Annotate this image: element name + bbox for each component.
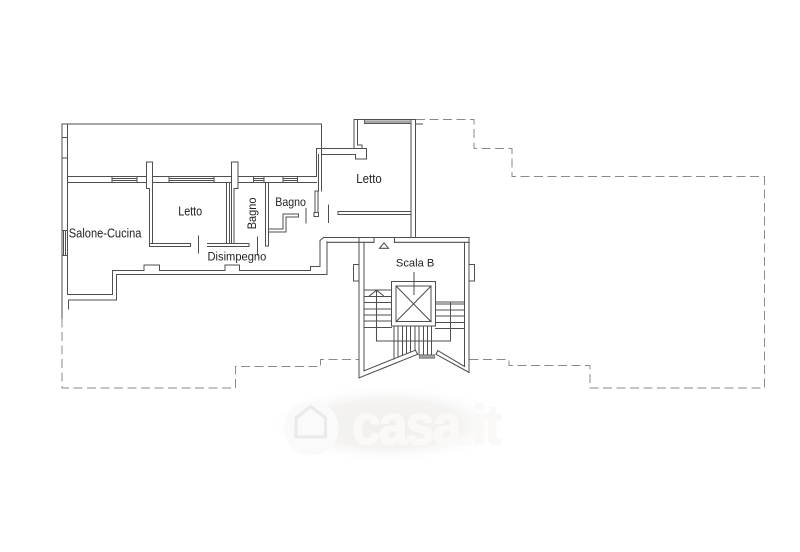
svg-text:casa.it: casa.it (352, 393, 501, 456)
svg-text:Bagno: Bagno (245, 197, 259, 229)
svg-text:Letto: Letto (178, 204, 202, 219)
svg-text:Scala B: Scala B (396, 257, 435, 269)
svg-text:Bagno: Bagno (275, 195, 306, 209)
svg-text:Salone-Cucina: Salone-Cucina (69, 227, 142, 241)
svg-text:Disimpegno: Disimpegno (208, 249, 267, 263)
svg-text:Letto: Letto (356, 171, 382, 186)
